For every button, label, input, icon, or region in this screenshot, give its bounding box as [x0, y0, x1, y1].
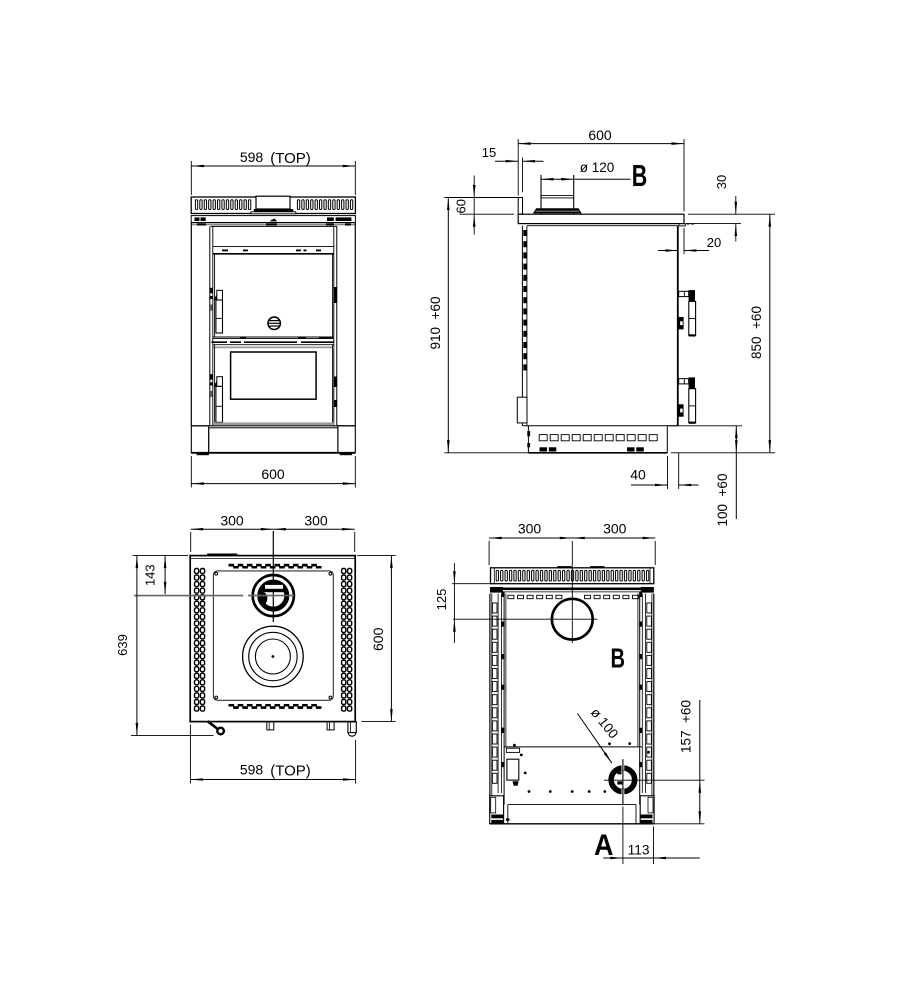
svg-text:100 +60: 100 +60: [715, 474, 730, 527]
svg-text:300: 300: [220, 513, 244, 529]
svg-text:(TOP): (TOP): [270, 150, 311, 167]
svg-text:300: 300: [603, 521, 627, 537]
svg-text:143: 143: [142, 564, 157, 586]
svg-text:60: 60: [454, 199, 469, 213]
svg-text:113: 113: [628, 842, 650, 857]
svg-text:40: 40: [630, 467, 646, 483]
svg-text:30: 30: [714, 175, 729, 189]
svg-text:B: B: [610, 642, 625, 673]
svg-text:300: 300: [518, 521, 542, 537]
svg-text:157 +60: 157 +60: [679, 700, 694, 753]
svg-text:15: 15: [482, 145, 496, 160]
svg-text:600: 600: [261, 466, 285, 482]
svg-text:20: 20: [707, 235, 721, 250]
svg-text:598: 598: [240, 762, 264, 778]
svg-text:600: 600: [370, 627, 386, 651]
svg-text:300: 300: [304, 513, 328, 529]
svg-text:600: 600: [588, 127, 612, 143]
svg-text:850 +60: 850 +60: [749, 306, 764, 359]
svg-text:(TOP): (TOP): [270, 763, 311, 780]
svg-text:125: 125: [434, 589, 449, 611]
svg-text:598: 598: [240, 149, 264, 165]
svg-text:910 +60: 910 +60: [428, 297, 443, 350]
svg-text:A: A: [594, 829, 614, 862]
svg-text:639: 639: [115, 634, 130, 656]
svg-text:ø 120: ø 120: [580, 160, 615, 175]
svg-text:B: B: [632, 158, 648, 193]
